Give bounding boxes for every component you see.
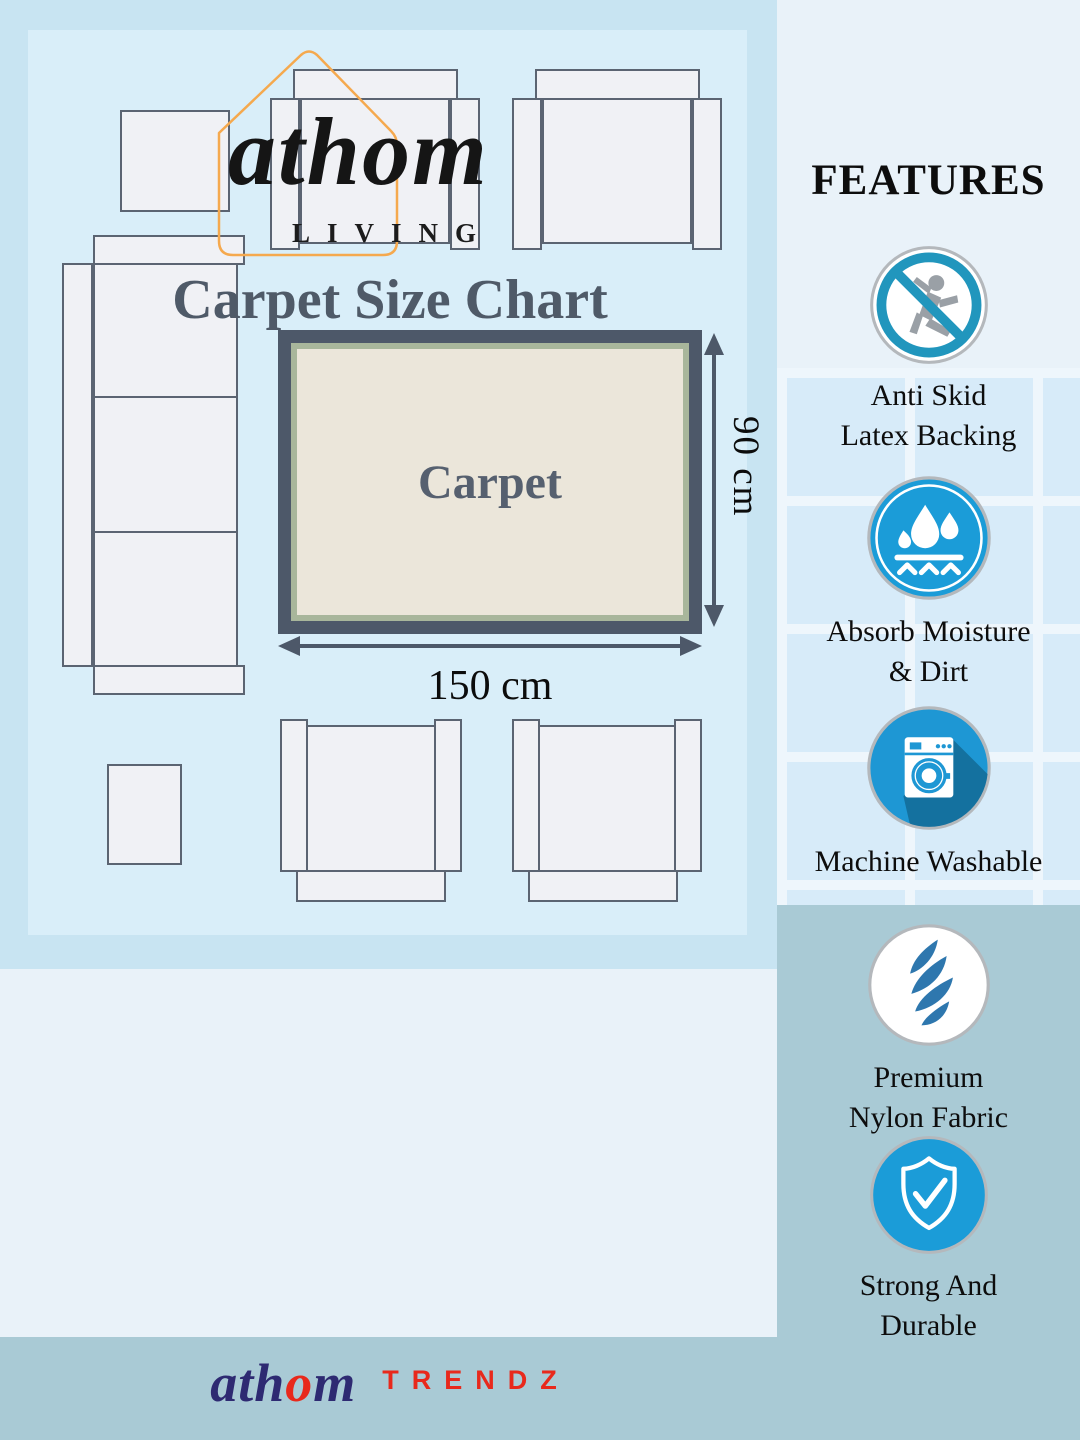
brand-logo-living: LIVING [292,218,493,249]
armchair-armrest [512,719,540,872]
armchair-seat [306,725,436,872]
shield-check-icon [868,1134,990,1256]
feature-machine-washable: Machine Washable [777,704,1080,882]
side-table [107,764,182,865]
armchair-back [296,870,446,902]
infographic-page: Carpet 90 cm 150 cm athom LIVING Carpet … [0,0,1080,1440]
feature-premium-nylon: Premium Nylon Fabric [777,922,1080,1137]
feature-label: Strong And Durable [860,1266,998,1345]
sofa-seat [93,396,238,533]
armchair-seat [542,98,692,244]
feature-label: Absorb Moisture & Dirt [826,612,1030,691]
height-dimension-label: 90 cm [724,416,767,517]
carpet-surface: Carpet [291,343,689,621]
armchair-armrest [692,98,722,250]
sofa-armrest [93,665,245,695]
width-dimension-label: 150 cm [278,662,702,710]
feature-absorb-moisture: Absorb Moisture & Dirt [777,474,1080,691]
feature-anti-skid: Anti Skid Latex Backing [777,244,1080,455]
water-drops-icon [865,474,993,602]
brand-logo-athom: athom [228,96,489,207]
footer-brand-red-o: o [285,1353,313,1413]
armchair-armrest [280,719,308,872]
feature-label: Machine Washable [815,842,1043,882]
feature-strong-durable: Strong And Durable [777,1134,1080,1345]
washing-machine-icon [865,704,993,832]
width-dimension-arrow [278,632,702,660]
feature-label: Anti Skid Latex Backing [841,376,1017,455]
armchair-armrest [512,98,542,250]
feature-label: Premium Nylon Fabric [849,1058,1008,1137]
page-title: Carpet Size Chart [0,268,780,332]
features-column: FEATURES Anti Skid Latex Backing [777,0,1080,1440]
armchair-armrest [434,719,462,872]
fabric-swirl-icon [866,922,992,1048]
carpet-label: Carpet [418,455,562,510]
footer-brand-trendz: TRENDZ [382,1365,570,1395]
carpet-rect: Carpet [278,330,702,634]
features-heading: FEATURES [777,156,1080,205]
armchair-armrest [674,719,702,872]
armchair-seat [538,725,676,872]
no-slip-icon [868,244,990,366]
footer-brand-athom: athom [210,1353,356,1413]
sofa-seat [93,531,238,667]
armchair-back [528,870,678,902]
footer-logo: athom TRENDZ [0,1352,780,1414]
